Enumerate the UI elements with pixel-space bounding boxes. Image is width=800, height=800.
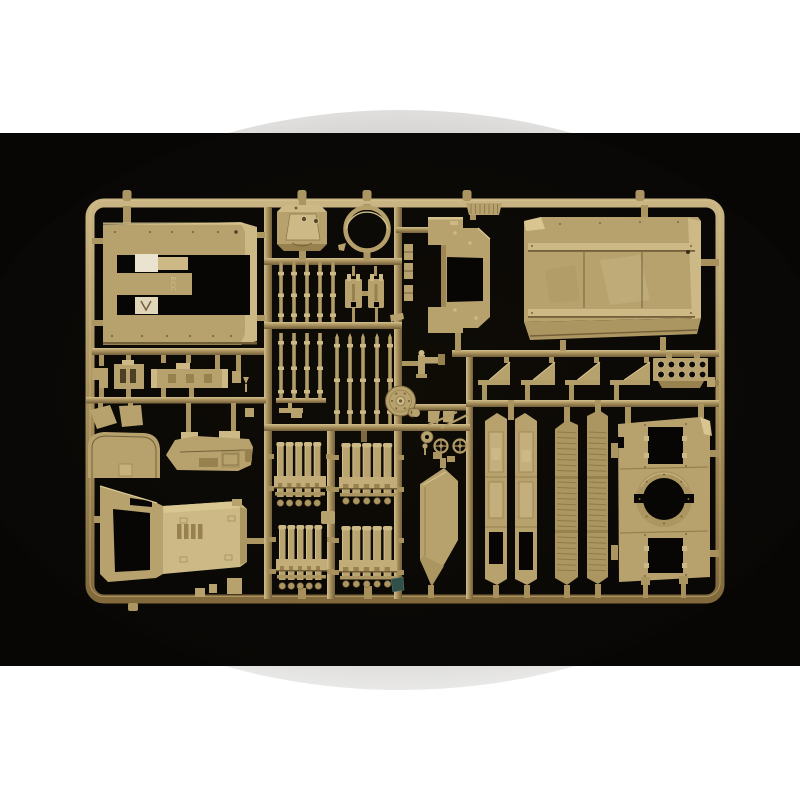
- gate: [710, 450, 719, 457]
- sprue-product-photo: ECC: [0, 0, 800, 800]
- lever-knob: [422, 443, 427, 448]
- sprue-nub: [123, 190, 132, 201]
- rivet: [217, 231, 219, 233]
- clip: [232, 371, 241, 383]
- sprue-nub: [363, 190, 372, 201]
- periscope: [301, 216, 306, 221]
- rivet: [192, 231, 194, 233]
- rivet: [685, 465, 687, 467]
- round-hole: [699, 361, 706, 368]
- edge-clip: [611, 545, 618, 560]
- rivet: [677, 221, 679, 223]
- rivet: [114, 231, 116, 233]
- round-hole: [679, 361, 686, 368]
- round-hole: [699, 371, 706, 378]
- pedal-box: [114, 360, 144, 389]
- skirt-opening: [519, 532, 533, 570]
- rivet-bump: [453, 231, 457, 235]
- skirt-opening: [489, 532, 503, 564]
- rivet: [149, 231, 151, 233]
- round-hole: [668, 371, 675, 378]
- handwheel: [435, 440, 448, 453]
- rivet: [189, 335, 191, 337]
- ammo-round: [286, 446, 293, 497]
- ammo-round: [277, 446, 284, 497]
- rivet: [166, 335, 168, 337]
- ammo-round: [314, 446, 321, 497]
- gate: [364, 586, 372, 599]
- hull-deck-panel: [524, 205, 701, 351]
- connector: [362, 291, 368, 296]
- sprue-nub: [463, 190, 472, 201]
- rivet: [685, 423, 687, 425]
- cab-window-opening: [113, 509, 150, 572]
- dark-gate: [361, 430, 367, 442]
- rivet: [212, 335, 214, 337]
- gate: [123, 206, 131, 223]
- arched-windshield: [88, 432, 160, 478]
- photo-canvas: ECC: [0, 0, 800, 800]
- gate: [710, 550, 719, 557]
- hatch-opening: [648, 427, 683, 464]
- rivet: [111, 335, 113, 337]
- window-opening: [447, 257, 483, 302]
- gate: [595, 584, 601, 598]
- hatch-opening: [648, 538, 683, 573]
- gate: [298, 588, 306, 599]
- hatch-tab: [119, 464, 132, 476]
- rivet: [644, 466, 646, 468]
- rivet: [531, 312, 533, 314]
- rivet: [599, 222, 601, 224]
- gate: [564, 585, 570, 598]
- rivet: [559, 223, 561, 225]
- white-insert: [135, 297, 158, 314]
- round-hole: [679, 371, 686, 378]
- gate: [493, 585, 499, 598]
- gate: [94, 516, 100, 523]
- gate: [701, 259, 719, 266]
- frame-nub: [128, 603, 138, 611]
- turret-hatch-octagon: [277, 199, 327, 260]
- round-hole: [689, 361, 696, 368]
- deck-rail: [528, 309, 695, 316]
- turret-ring-opening: [643, 478, 685, 520]
- rivet-bump: [474, 316, 478, 320]
- rivet: [644, 575, 646, 577]
- handwheel: [454, 440, 467, 453]
- gate: [508, 400, 514, 420]
- periscope: [313, 218, 318, 223]
- rivet: [531, 245, 533, 247]
- hull-roof-panel: ECC: [92, 206, 265, 345]
- rivet: [685, 533, 687, 535]
- edge-clip: [611, 443, 618, 458]
- rivet-bump: [453, 308, 457, 312]
- gate: [440, 458, 446, 468]
- ammo-round: [305, 446, 312, 497]
- gate: [524, 585, 530, 598]
- rivet: [685, 574, 687, 576]
- shadowed-part: [391, 577, 404, 592]
- runner-coupler: [321, 511, 335, 524]
- ammo-round: [295, 446, 302, 497]
- gate: [681, 584, 686, 598]
- round-hole: [658, 371, 665, 378]
- gate: [455, 333, 461, 351]
- embossed-text: ECC: [169, 277, 177, 292]
- round-hole: [668, 361, 675, 368]
- small-bracket: [245, 408, 254, 417]
- gate: [641, 205, 648, 218]
- rivet: [644, 534, 646, 536]
- rivet-bump: [468, 241, 472, 245]
- mudflap: [119, 405, 143, 427]
- gate: [428, 585, 434, 598]
- rivet: [644, 424, 646, 426]
- rivet: [171, 231, 173, 233]
- round-hole: [689, 371, 696, 378]
- sprue-nub: [636, 190, 645, 201]
- gate: [299, 251, 306, 260]
- gate: [402, 361, 418, 366]
- gate: [643, 585, 648, 598]
- clip: [232, 499, 242, 506]
- rivet: [690, 245, 692, 247]
- white-insert: [135, 254, 158, 272]
- round-hole: [658, 361, 665, 368]
- rivet: [230, 335, 232, 337]
- vent-grille: [466, 203, 502, 215]
- rivet: [639, 221, 641, 223]
- turret-ring-plate: [611, 404, 712, 585]
- rivet: [690, 312, 692, 314]
- deck-rail: [528, 243, 695, 250]
- rivet: [141, 335, 143, 337]
